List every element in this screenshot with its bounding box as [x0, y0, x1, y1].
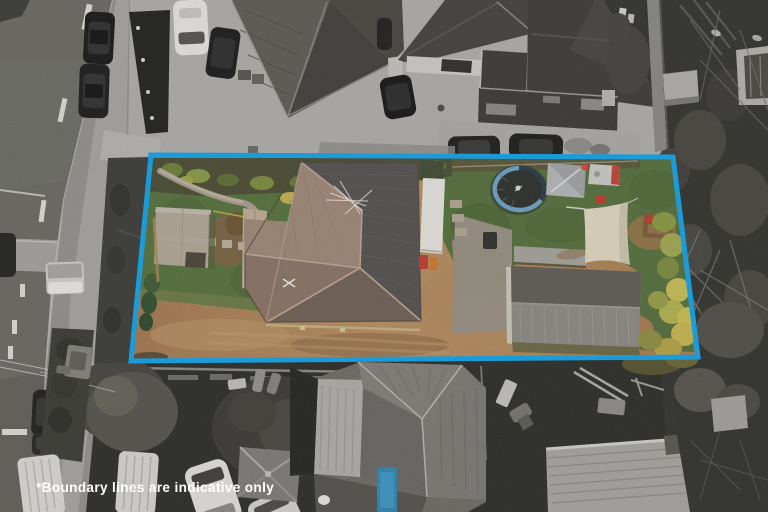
svg-text:*Boundary lines are indicative: *Boundary lines are indicative only — [36, 480, 274, 495]
